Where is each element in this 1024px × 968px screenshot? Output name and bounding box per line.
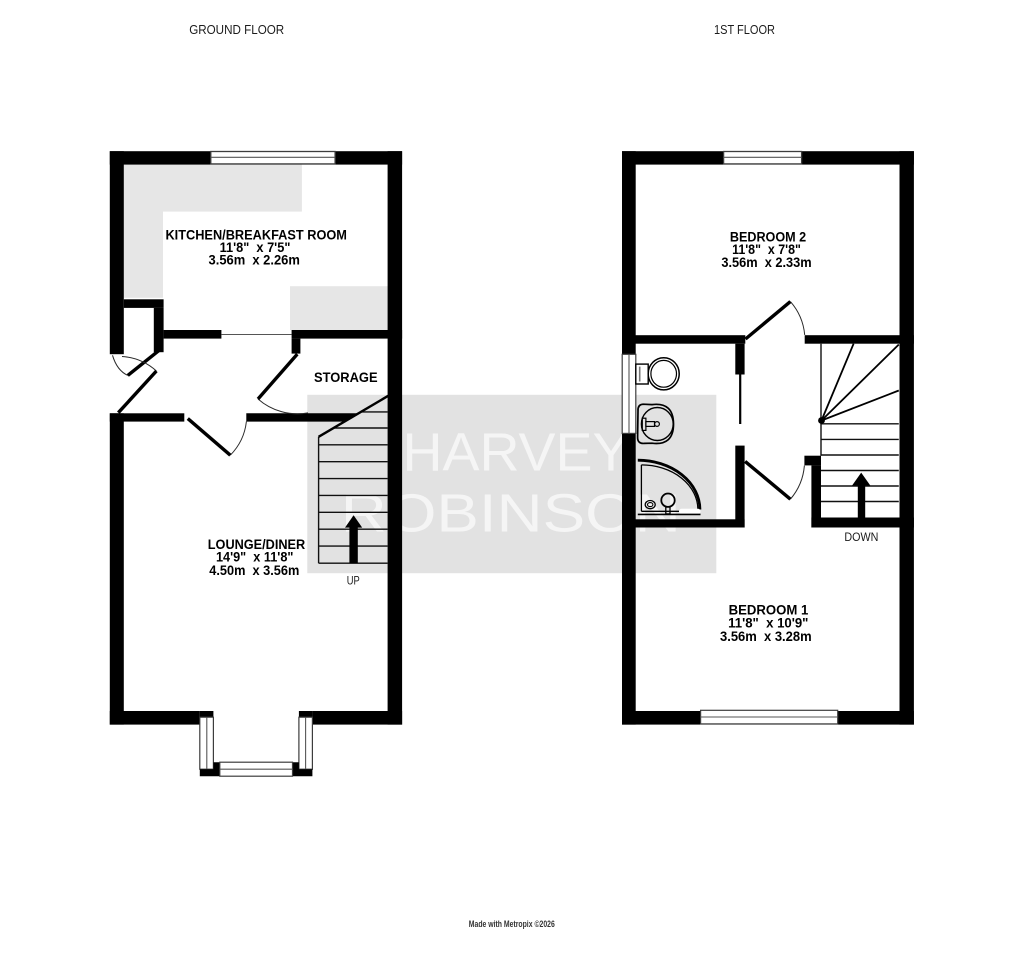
svg-text:DOWN: DOWN xyxy=(844,530,878,544)
svg-text:3.56m x 2.26m: 3.56m x 2.26m xyxy=(209,253,300,269)
svg-text:STORAGE: STORAGE xyxy=(314,370,378,386)
svg-text:HARVEY: HARVEY xyxy=(403,424,630,483)
svg-text:GROUND FLOOR: GROUND FLOOR xyxy=(189,23,284,37)
svg-text:UP: UP xyxy=(347,576,360,588)
svg-text:3.56m x 3.28m: 3.56m x 3.28m xyxy=(720,629,812,645)
svg-text:4.50m x 3.56m: 4.50m x 3.56m xyxy=(209,563,299,579)
svg-text:Made with Metropix ©2026: Made with Metropix ©2026 xyxy=(469,919,555,930)
svg-text:1ST FLOOR: 1ST FLOOR xyxy=(714,23,775,37)
svg-text:3.56m x 2.33m: 3.56m x 2.33m xyxy=(721,255,811,271)
